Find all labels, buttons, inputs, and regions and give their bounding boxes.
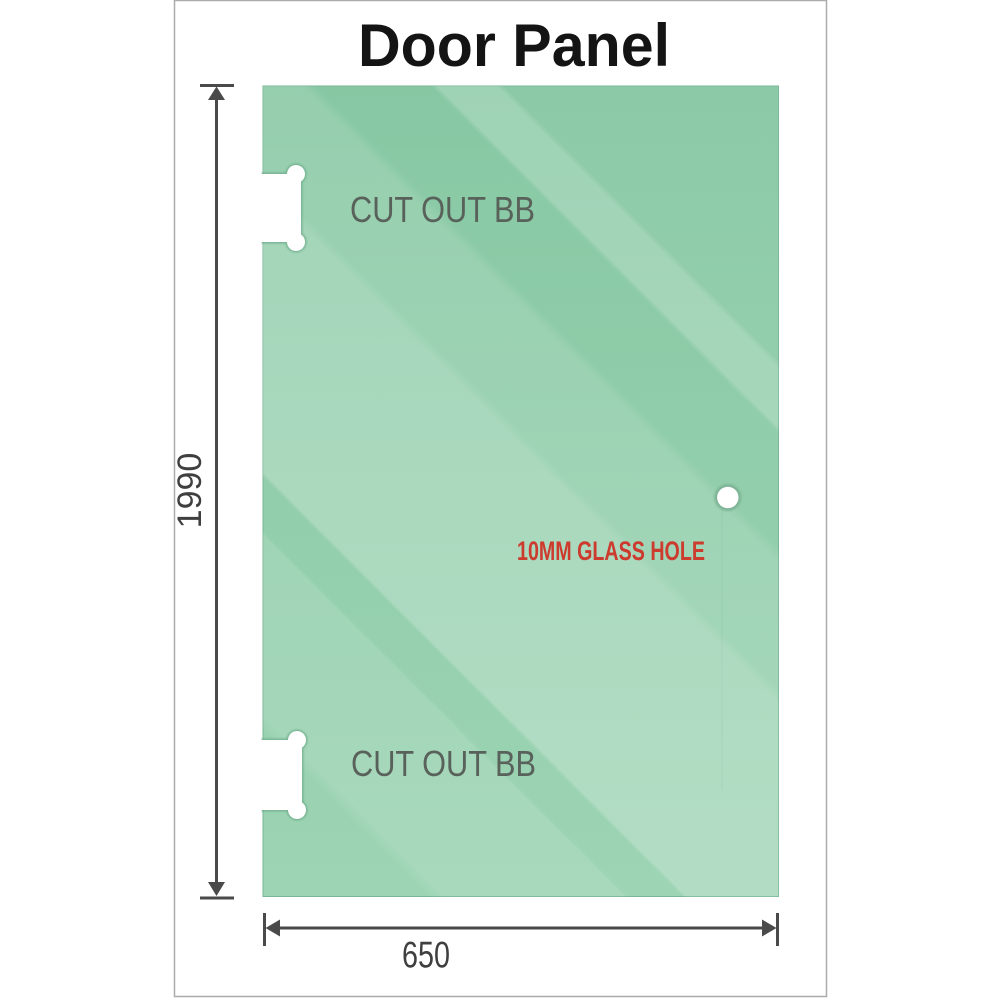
svg-text:Door Panel: Door Panel [358, 12, 670, 79]
svg-text:CUT OUT BB: CUT OUT BB [350, 189, 535, 230]
svg-text:650: 650 [402, 935, 450, 976]
svg-text:1990: 1990 [171, 453, 209, 529]
svg-text:CUT OUT BB: CUT OUT BB [351, 743, 536, 784]
svg-text:10MM GLASS HOLE: 10MM GLASS HOLE [517, 536, 705, 566]
